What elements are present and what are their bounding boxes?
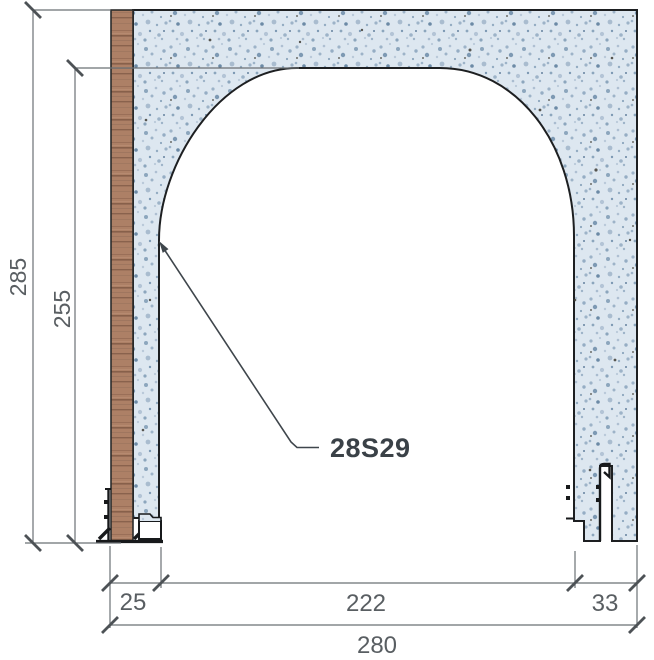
dim-text-right-jamb: 33 (592, 590, 619, 617)
right-j-profile (600, 464, 610, 541)
dim-text-left-jamb: 25 (120, 589, 147, 616)
screw-head-icon (566, 496, 570, 500)
screw-head-icon (104, 515, 108, 519)
screw-head-icon (596, 498, 600, 502)
dim-text-opening-height: 255 (49, 290, 75, 328)
screw-head-icon (596, 485, 600, 489)
dim-text-opening-width: 222 (346, 590, 386, 617)
screw-head-icon (104, 500, 108, 504)
dim-text-overall-height: 285 (5, 258, 31, 296)
dim-text-overall-width: 280 (357, 632, 397, 659)
drawing-page: 285 255 25 222 33 280 28S29 (0, 0, 654, 660)
wood-batten (111, 10, 133, 541)
profiles (96, 464, 610, 542)
callout-leader-line (162, 246, 319, 448)
screw-head-icon (566, 485, 570, 489)
section-drawing-canvas: 285 255 25 222 33 280 28S29 (0, 0, 654, 660)
callout-label: 28S29 (330, 433, 411, 463)
callout-arrowhead-icon (159, 241, 169, 253)
step-profile (139, 521, 161, 539)
